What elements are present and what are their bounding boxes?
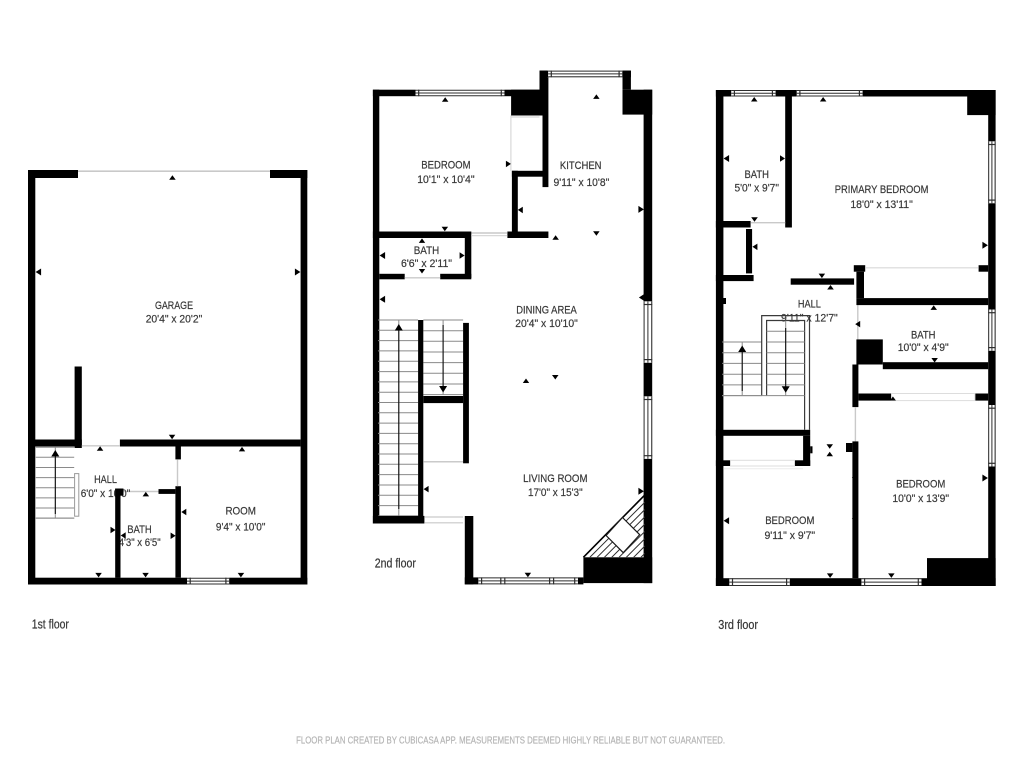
svg-text:HALL: HALL	[94, 474, 117, 486]
svg-text:ROOM: ROOM	[225, 506, 256, 518]
svg-text:GARAGE: GARAGE	[155, 300, 193, 312]
svg-text:BATH: BATH	[744, 169, 769, 181]
svg-text:LIVING ROOM: LIVING ROOM	[523, 473, 587, 485]
svg-text:FLOOR PLAN CREATED BY CUBICASA: FLOOR PLAN CREATED BY CUBICASA APP. MEAS…	[296, 736, 725, 747]
svg-text:KITCHEN: KITCHEN	[560, 160, 602, 172]
svg-text:17'0" x 15'3": 17'0" x 15'3"	[528, 487, 583, 499]
svg-text:BEDROOM: BEDROOM	[421, 159, 470, 171]
svg-text:BATH: BATH	[911, 330, 936, 342]
svg-text:DINING AREA: DINING AREA	[516, 305, 577, 317]
svg-text:5'0" x 9'7": 5'0" x 9'7"	[734, 182, 779, 194]
svg-text:BEDROOM: BEDROOM	[765, 515, 814, 527]
svg-text:BEDROOM: BEDROOM	[896, 478, 945, 490]
svg-text:10'0" x 13'9": 10'0" x 13'9"	[892, 493, 949, 505]
svg-text:9'11" x 12'7": 9'11" x 12'7"	[781, 312, 838, 324]
svg-text:HALL: HALL	[798, 299, 821, 311]
svg-text:BATH: BATH	[414, 245, 440, 257]
svg-text:10'0" x 4'9": 10'0" x 4'9"	[898, 342, 949, 354]
svg-text:9'4" x 10'0": 9'4" x 10'0"	[216, 522, 266, 534]
svg-text:9'11" x 10'8": 9'11" x 10'8"	[554, 177, 610, 189]
svg-text:2nd floor: 2nd floor	[375, 557, 416, 571]
svg-text:20'4" x 10'10": 20'4" x 10'10"	[515, 318, 578, 330]
svg-text:9'11" x 9'7": 9'11" x 9'7"	[764, 530, 815, 542]
svg-text:1st floor: 1st floor	[32, 617, 69, 631]
svg-text:20'4" x 20'2": 20'4" x 20'2"	[146, 314, 203, 326]
svg-text:10'1" x 10'4": 10'1" x 10'4"	[417, 174, 474, 186]
svg-text:6'6" x 2'11": 6'6" x 2'11"	[401, 258, 452, 270]
svg-text:BATH: BATH	[127, 524, 152, 536]
svg-text:4'3" x 6'5": 4'3" x 6'5"	[119, 537, 161, 549]
svg-text:18'0" x 13'11": 18'0" x 13'11"	[850, 199, 913, 211]
svg-text:PRIMARY BEDROOM: PRIMARY BEDROOM	[835, 184, 929, 196]
svg-text:3rd floor: 3rd floor	[718, 618, 758, 632]
